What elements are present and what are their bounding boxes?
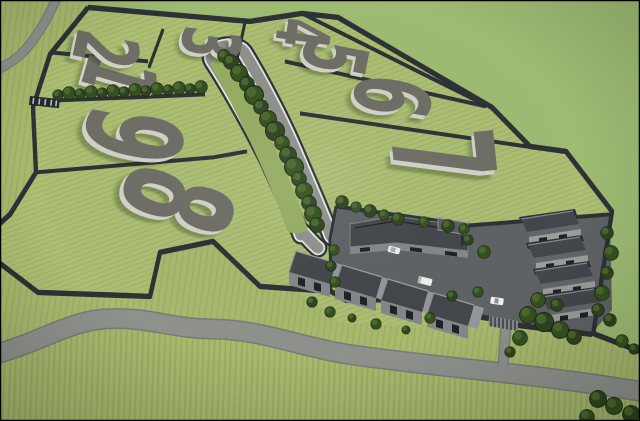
tree-highlight [142,87,148,93]
tree [477,245,490,258]
tree-highlight [246,87,256,97]
tree [328,244,339,255]
tree-highlight [443,221,450,228]
tree [600,266,613,279]
tree-highlight [54,91,60,97]
tree-highlight [605,247,613,255]
tree [378,209,389,220]
tree [74,88,85,99]
tree-highlight [460,225,466,231]
tree-highlight [552,300,559,307]
tree [106,84,119,97]
tree [52,89,63,100]
tree-highlight [581,411,589,419]
tree-highlight [225,56,233,64]
tree [603,245,619,261]
tree-highlight [617,336,624,343]
scene-svg: 1 1 1 2 2 2 3 3 3 4 4 4 5 5 5 6 6 6 [0,0,640,421]
tree-highlight [261,112,270,121]
tree [628,343,639,354]
tree-highlight [365,206,372,213]
tree-highlight [605,315,612,322]
tree [600,226,613,239]
tree-highlight [349,314,353,318]
tree [370,318,381,329]
tree-highlight [506,348,512,354]
tree-highlight [174,83,181,90]
east-building-window [580,312,588,318]
tree [594,285,610,301]
tree [325,260,336,271]
tree-highlight [448,292,454,298]
tree-highlight [420,218,426,224]
tree-highlight [553,323,562,332]
tree [550,298,563,311]
tree-highlight [607,399,616,408]
tree [462,234,473,245]
tree [329,276,340,287]
tree-highlight [372,320,378,326]
tree [150,82,163,95]
site-plan-render: 1 1 1 2 2 2 3 3 3 4 4 4 5 5 5 6 6 6 [0,0,640,421]
tree-highlight [591,392,600,401]
tree-highlight [108,86,115,93]
tree [418,216,429,227]
tree [335,195,348,208]
tree [309,217,325,233]
tree-highlight [64,88,71,95]
tree-highlight [327,262,333,268]
tree [402,326,411,335]
tree [566,329,582,345]
tree-highlight [514,332,522,340]
tree-highlight [98,89,104,95]
tree [615,334,628,347]
tree [605,397,623,415]
tree-highlight [130,85,137,92]
tree-highlight [330,246,336,252]
tree-highlight [624,407,633,416]
tree-highlight [596,287,604,295]
tree [172,81,185,94]
tree [184,83,195,94]
tree [350,201,361,212]
tree [504,346,515,357]
tree [96,87,107,98]
tree [140,85,151,96]
tree-highlight [426,314,432,320]
tree-highlight [602,268,609,275]
east-building-window [560,315,568,321]
tree-highlight [297,184,306,193]
tree-highlight [602,228,609,235]
tree [534,312,554,332]
tree-highlight [593,305,600,312]
tree-highlight [281,148,290,157]
tree-highlight [521,308,530,317]
tree-highlight [164,86,170,92]
tree-highlight [337,197,344,204]
tree-highlight [326,308,332,314]
tree [118,86,129,97]
tree [446,290,457,301]
tree [441,219,454,232]
tree-highlight [352,203,358,209]
tree [512,330,528,346]
tree [348,314,357,323]
tree-highlight [219,51,226,58]
tree-highlight [464,236,470,242]
tree-highlight [311,219,319,227]
tree-highlight [303,197,311,205]
tree [589,390,607,408]
tree-highlight [306,207,315,216]
tree-highlight [568,331,576,339]
tree-highlight [241,78,249,86]
tree [603,313,616,326]
tree-highlight [293,173,301,181]
tree-highlight [76,90,82,96]
tree-highlight [532,294,540,302]
tree [128,83,141,96]
tree-highlight [86,87,93,94]
tree-highlight [286,159,296,169]
tree-highlight [380,211,386,217]
tree [424,312,435,323]
tree [472,286,483,297]
tree-highlight [630,345,636,351]
tree [591,303,604,316]
tree-highlight [196,82,203,89]
tree-highlight [276,137,284,145]
tree [363,204,376,217]
tree [162,84,173,95]
tree-highlight [536,314,546,324]
tree-highlight [403,326,407,330]
tree-highlight [255,101,263,109]
tree-highlight [474,288,480,294]
tree-highlight [186,85,192,91]
tree [84,85,97,98]
tree-highlight [152,84,159,91]
tree-highlight [331,278,337,284]
tree-highlight [393,214,400,221]
tree-highlight [120,88,126,94]
tree [324,306,335,317]
tree-highlight [232,66,241,75]
tree [306,296,317,307]
tree-highlight [479,247,486,254]
tree [458,223,469,234]
tree [62,86,75,99]
tree [194,80,207,93]
tree [391,212,404,225]
tree-highlight [267,123,277,133]
tree [530,292,546,308]
tree-highlight [308,298,314,304]
